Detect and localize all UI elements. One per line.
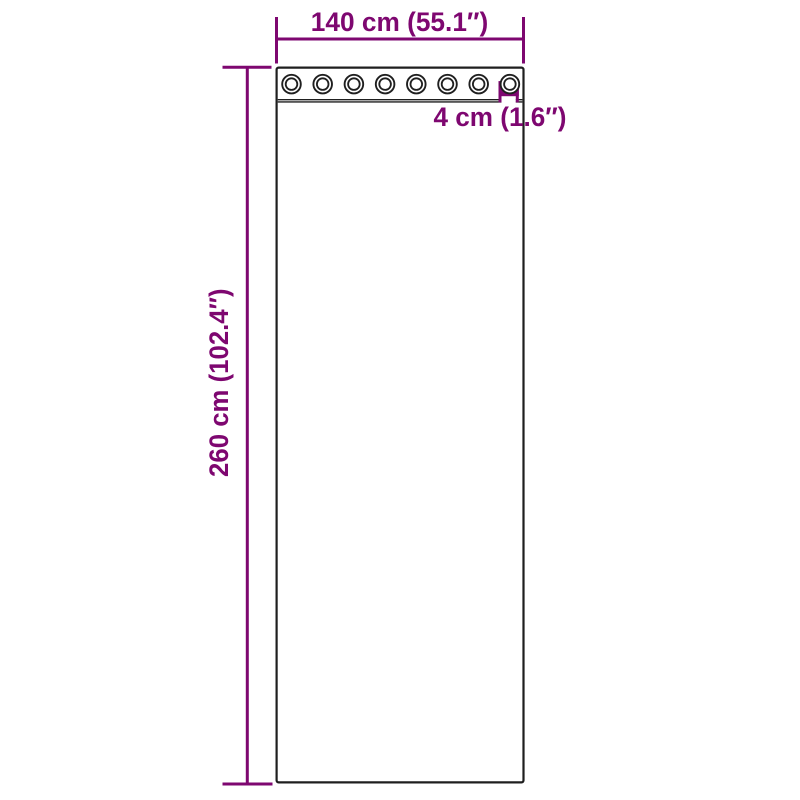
svg-text:140 cm (55.1″): 140 cm (55.1″) — [311, 7, 489, 37]
svg-text:260 cm (102.4″): 260 cm (102.4″) — [204, 288, 234, 477]
svg-text:4 cm (1.6″): 4 cm (1.6″) — [434, 102, 567, 132]
